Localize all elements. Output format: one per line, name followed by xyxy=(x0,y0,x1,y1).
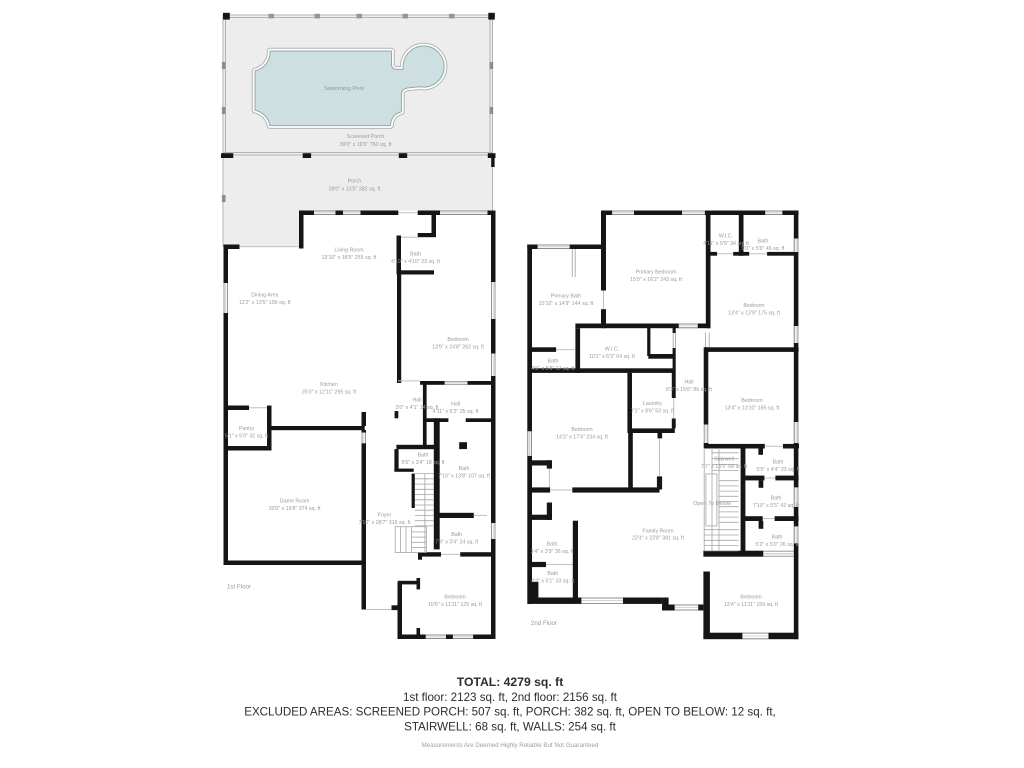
svg-text:Hall: Hall xyxy=(412,398,421,404)
svg-text:Screened Porch: Screened Porch xyxy=(347,134,385,140)
svg-text:5′5″ x 4′4″ 23 sq. ft: 5′5″ x 4′4″ 23 sq. ft xyxy=(756,467,800,473)
svg-text:5′2″ x 5′0″ 26 sq. ft: 5′2″ x 5′0″ 26 sq. ft xyxy=(755,542,799,548)
svg-text:Bedroom: Bedroom xyxy=(741,398,763,404)
svg-text:W.I.C.: W.I.C. xyxy=(719,234,733,240)
svg-text:4′4″ x 5′1″ 33 sq. ft: 4′4″ x 5′1″ 33 sq. ft xyxy=(531,578,575,584)
svg-text:7′10″ x 13′8″ 107 sq. ft: 7′10″ x 13′8″ 107 sq. ft xyxy=(438,473,490,479)
svg-text:Bath: Bath xyxy=(410,252,421,258)
svg-text:20′0″ x 19′8″ 374 sq. ft: 20′0″ x 19′8″ 374 sq. ft xyxy=(269,506,321,512)
svg-text:Bedroom: Bedroom xyxy=(740,595,762,601)
svg-text:15′0″ x 16′2″ 243 sq. ft: 15′0″ x 16′2″ 243 sq. ft xyxy=(630,277,682,283)
svg-text:10′6″ x 11′11″ 125 sq. ft: 10′6″ x 11′11″ 125 sq. ft xyxy=(428,602,482,608)
svg-text:EXCLUDED AREAS: SCREENED PORCH: EXCLUDED AREAS: SCREENED PORCH: 507 sq. … xyxy=(244,706,776,719)
svg-text:7′2″ x 8′6″ 53 sq. ft: 7′2″ x 8′6″ 53 sq. ft xyxy=(631,408,675,414)
svg-text:Laundry: Laundry xyxy=(643,401,662,407)
svg-text:13′4″ x 13′9″ 175 sq. ft: 13′4″ x 13′9″ 175 sq. ft xyxy=(728,310,780,316)
svg-text:2nd Floor: 2nd Floor xyxy=(531,620,557,627)
svg-text:10′10″ x 14′9″ 144 sq. ft: 10′10″ x 14′9″ 144 sq. ft xyxy=(539,301,594,307)
svg-text:Bath: Bath xyxy=(547,359,558,365)
svg-text:TOTAL: 4279 sq. ft: TOTAL: 4279 sq. ft xyxy=(457,675,564,689)
svg-text:39′0″ x 13′5″ 382 sq. ft: 39′0″ x 13′5″ 382 sq. ft xyxy=(329,186,381,192)
svg-text:10′2″ x 6′3″ 64 sq. ft: 10′2″ x 6′3″ 64 sq. ft xyxy=(589,354,636,360)
svg-text:Dining Area: Dining Area xyxy=(251,293,278,299)
svg-text:14′3″ x 17′4″ 234 sq. ft: 14′3″ x 17′4″ 234 sq. ft xyxy=(556,434,608,440)
svg-text:Porch: Porch xyxy=(348,179,362,185)
svg-text:7′10″ x 28′7″ 315 sq. ft: 7′10″ x 28′7″ 315 sq. ft xyxy=(359,520,411,526)
svg-text:7′10″ x 5′5″ 42 sq. ft: 7′10″ x 5′5″ 42 sq. ft xyxy=(753,503,800,509)
svg-text:Living Room: Living Room xyxy=(334,248,364,254)
svg-text:Open To Below: Open To Below xyxy=(693,501,732,507)
svg-text:Bath: Bath xyxy=(758,239,769,245)
svg-text:4′5″ x 5′8″ 17 sq. ft: 4′5″ x 5′8″ 17 sq. ft xyxy=(531,366,575,372)
svg-text:Bath: Bath xyxy=(418,453,429,459)
svg-text:1st Floor: 1st Floor xyxy=(227,584,251,591)
svg-text:1st floor: 2123 sq. ft, 2nd fl: 1st floor: 2123 sq. ft, 2nd floor: 2156 … xyxy=(403,691,618,704)
svg-text:Bedroom: Bedroom xyxy=(447,337,469,343)
svg-text:Foyer: Foyer xyxy=(378,513,392,519)
svg-text:Bath: Bath xyxy=(547,571,558,577)
svg-text:Bedroom: Bedroom xyxy=(444,595,466,601)
svg-text:Bedroom: Bedroom xyxy=(571,427,593,433)
svg-text:4′10″ x 4′10″ 23 sq. ft: 4′10″ x 4′10″ 23 sq. ft xyxy=(391,259,440,265)
svg-text:Bath: Bath xyxy=(771,496,782,502)
svg-text:Bath: Bath xyxy=(451,532,462,538)
svg-text:Game Room: Game Room xyxy=(280,499,310,505)
svg-text:Kitchen: Kitchen xyxy=(320,382,338,388)
svg-text:Primary Bath: Primary Bath xyxy=(551,294,581,300)
svg-text:STAIRWELL: 68 sq. ft, WALLS: 2: STAIRWELL: 68 sq. ft, WALLS: 254 sq. ft xyxy=(404,721,617,734)
svg-text:7′7″ x 13′5″ 68 sq. ft: 7′7″ x 13′5″ 68 sq. ft xyxy=(701,464,748,470)
svg-text:4′11″ x 5′2″ 25 sq. ft: 4′11″ x 5′2″ 25 sq. ft xyxy=(433,409,479,415)
svg-text:39′0″ x 19′5″ 760 sq. ft: 39′0″ x 19′5″ 760 sq. ft xyxy=(340,142,392,148)
svg-text:5′1″ x 5′9″ 32 sq. ft: 5′1″ x 5′9″ 32 sq. ft xyxy=(225,433,269,439)
svg-text:Bath: Bath xyxy=(547,542,558,548)
svg-text:13′4″ x 13′10″ 185 sq. ft: 13′4″ x 13′10″ 185 sq. ft xyxy=(725,405,780,411)
svg-text:Measurements Are Deemed Highly: Measurements Are Deemed Highly Reliable … xyxy=(422,742,599,749)
svg-text:W.I.C.: W.I.C. xyxy=(605,347,619,353)
svg-text:5′6″ x 3′4″ 18 sq. ft: 5′6″ x 3′4″ 18 sq. ft xyxy=(401,460,445,466)
svg-text:11′2″ x 13′5″ 156 sq. ft: 11′2″ x 13′5″ 156 sq. ft xyxy=(239,300,291,306)
svg-text:Hall: Hall xyxy=(684,380,693,386)
svg-text:Bath: Bath xyxy=(459,466,470,472)
svg-text:Primary Bedroom: Primary Bedroom xyxy=(636,270,677,276)
svg-text:Swimming Pool: Swimming Pool xyxy=(324,86,364,92)
svg-text:13′4″ x 11′11″ 159 sq. ft: 13′4″ x 11′11″ 159 sq. ft xyxy=(724,602,778,608)
svg-text:13′9″ x 24′8″ 262 sq. ft: 13′9″ x 24′8″ 262 sq. ft xyxy=(432,344,484,350)
svg-text:Hall: Hall xyxy=(451,402,460,408)
svg-text:22′4″ x 23′8″ 381 sq. ft: 22′4″ x 23′8″ 381 sq. ft xyxy=(632,536,684,542)
svg-text:Stairwell: Stairwell xyxy=(714,457,734,463)
svg-text:Family Room: Family Room xyxy=(643,529,675,535)
svg-text:Bath: Bath xyxy=(772,535,783,541)
svg-text:25′0″ x 12′11″ 295 sq. ft: 25′0″ x 12′11″ 295 sq. ft xyxy=(302,389,357,395)
svg-text:8′3″ x 15′6″ 86 sq. ft: 8′3″ x 15′6″ 86 sq. ft xyxy=(666,387,713,393)
svg-text:Bath: Bath xyxy=(773,460,784,466)
svg-text:9′0″ x 5′9″ 46 sq. ft: 9′0″ x 5′9″ 46 sq. ft xyxy=(741,246,785,252)
svg-text:Pantry: Pantry xyxy=(239,426,255,432)
svg-text:13′10″ x 18′5″ 255 sq. ft: 13′10″ x 18′5″ 255 sq. ft xyxy=(322,255,377,261)
svg-text:7′4″ x 3′4″ 24 sq. ft: 7′4″ x 3′4″ 24 sq. ft xyxy=(435,539,479,545)
svg-text:3′4″ x 3′9″ 36 sq. ft: 3′4″ x 3′9″ 36 sq. ft xyxy=(530,549,574,555)
svg-text:Bedroom: Bedroom xyxy=(743,303,765,309)
